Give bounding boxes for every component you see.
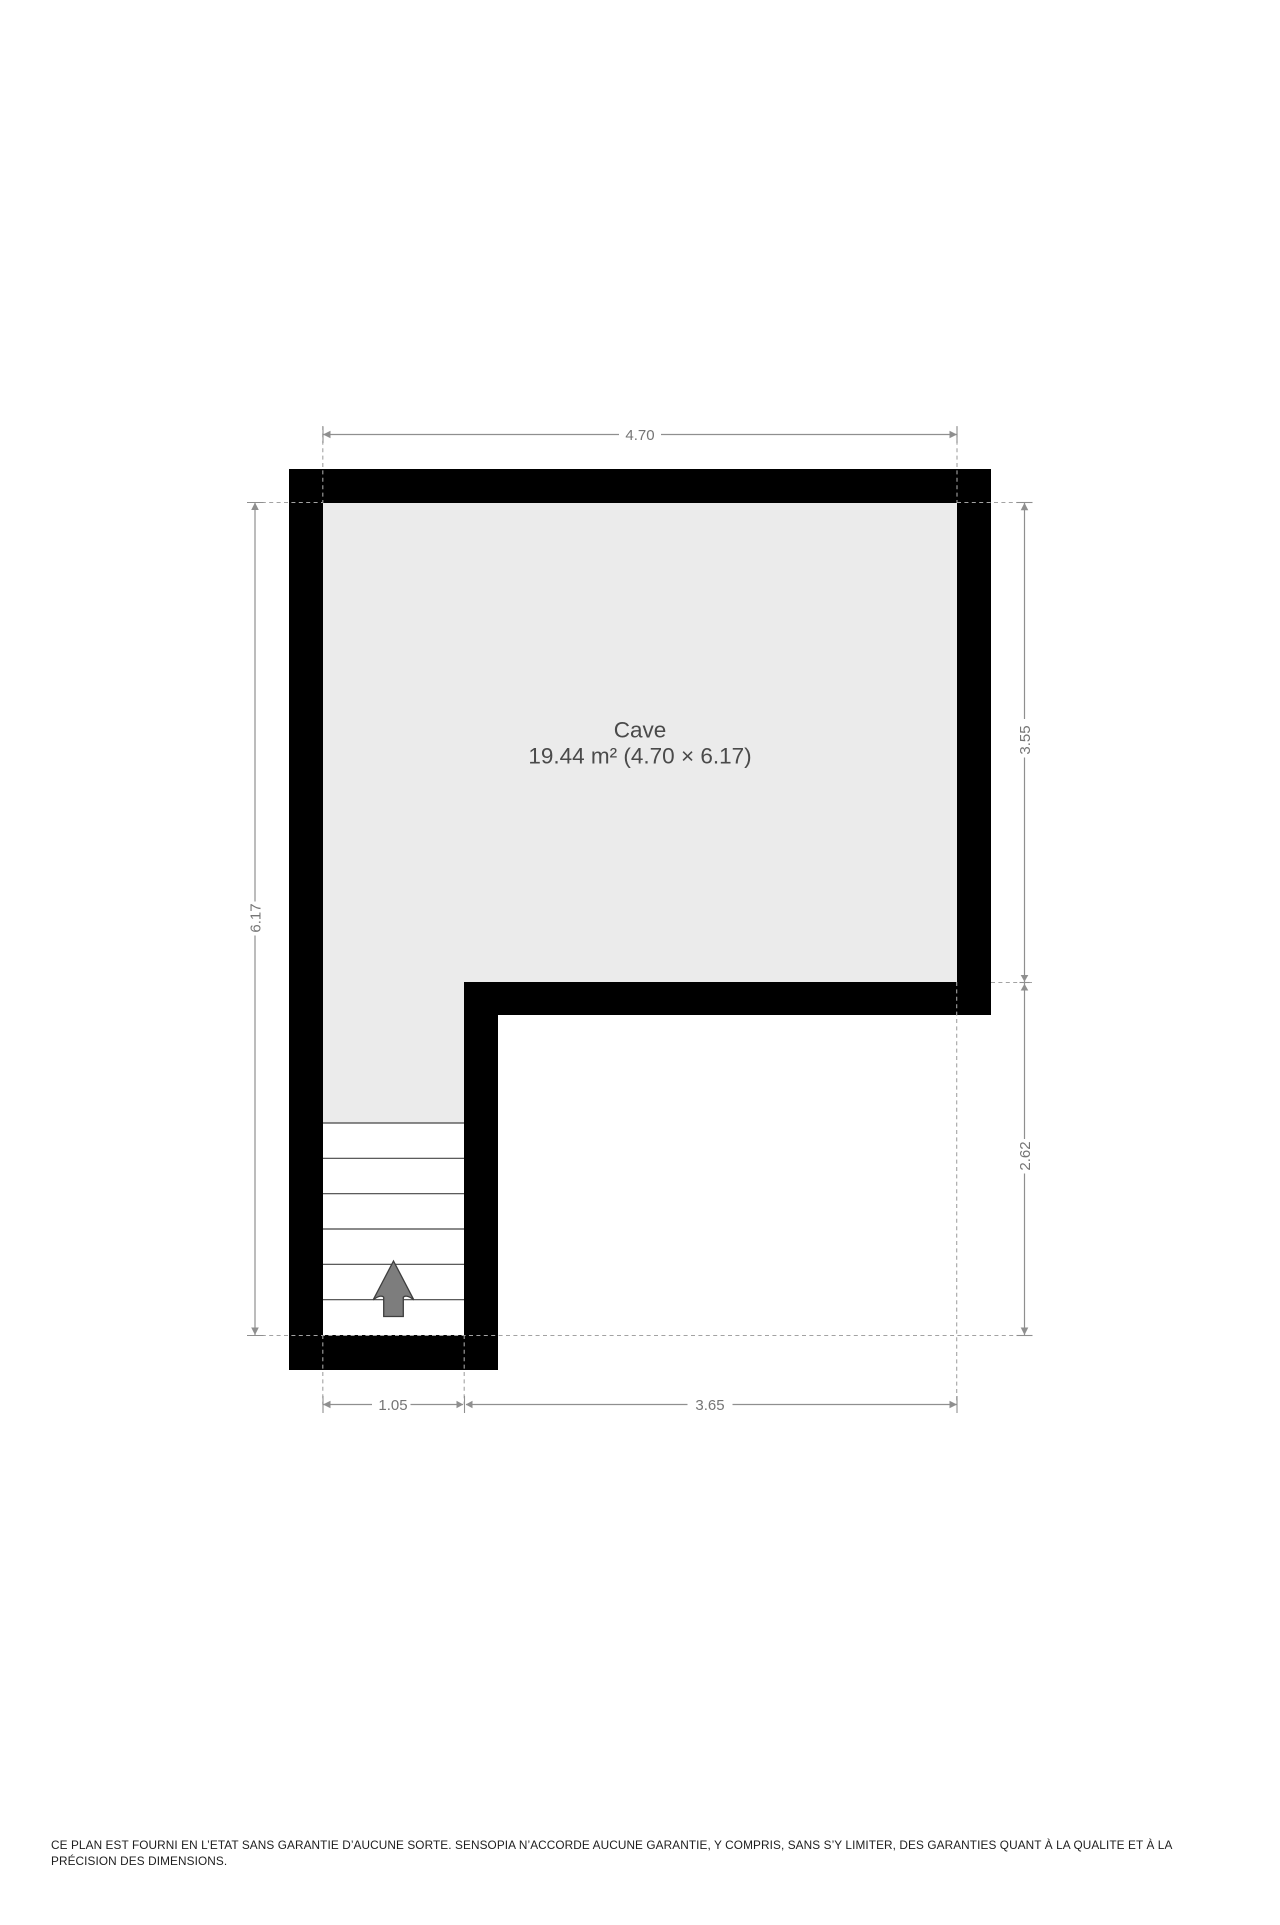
svg-text:6.17: 6.17 bbox=[248, 903, 265, 932]
svg-text:3.65: 3.65 bbox=[695, 1397, 724, 1414]
svg-text:19.44 m² (4.70 × 6.17): 19.44 m² (4.70 × 6.17) bbox=[528, 744, 751, 769]
svg-text:1.05: 1.05 bbox=[378, 1397, 407, 1414]
svg-text:4.70: 4.70 bbox=[625, 427, 654, 444]
svg-text:Cave: Cave bbox=[614, 718, 667, 743]
svg-text:3.55: 3.55 bbox=[1017, 725, 1034, 754]
svg-text:2.62: 2.62 bbox=[1017, 1141, 1034, 1170]
